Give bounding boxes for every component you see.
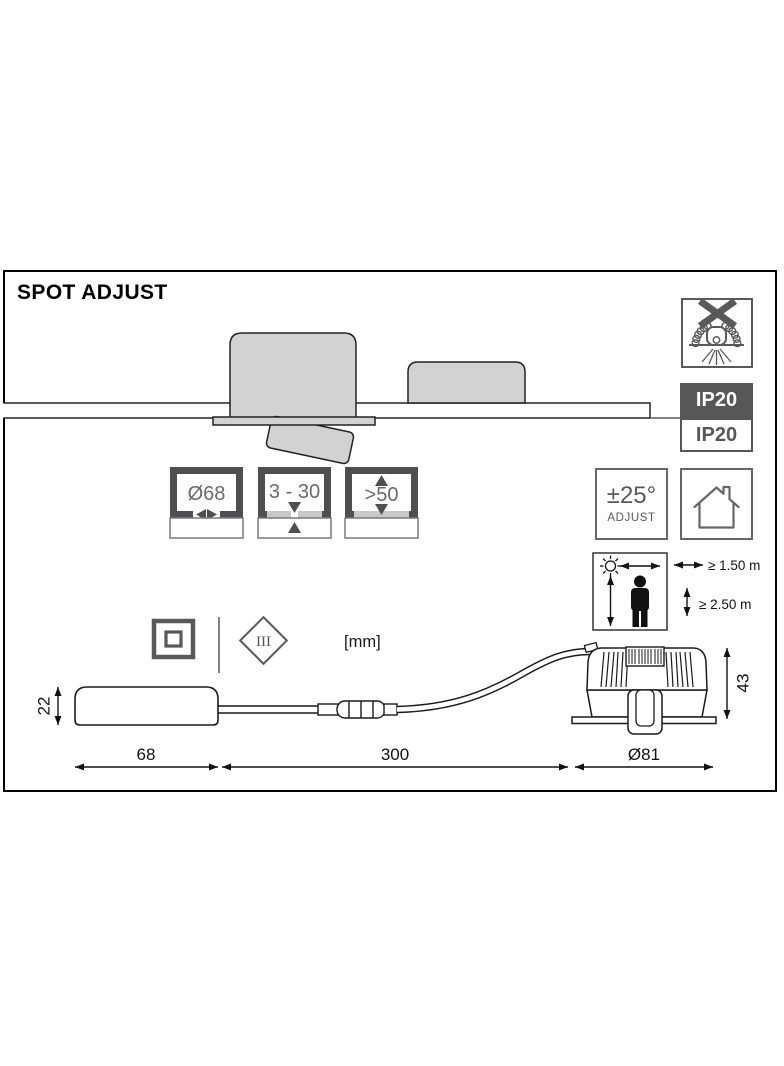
- page-title: SPOT ADJUST: [17, 281, 168, 305]
- datasheet-page: SPOT ADJUST IP20 IP20 ±25° ADJUST [mm]: [0, 0, 784, 1066]
- ip-rating-above-ceiling-badge: IP20: [680, 383, 753, 418]
- units-label: [mm]: [344, 633, 381, 652]
- ip-rating-below-ceiling-badge: IP20: [680, 418, 753, 452]
- no-insulation-cover-icon-box: [681, 298, 753, 368]
- indoor-use-icon-box: [680, 468, 753, 540]
- tilt-angle-value: ±25°: [607, 484, 656, 508]
- tilt-adjust-box: ±25° ADJUST: [595, 468, 668, 540]
- tilt-adjust-label: ADJUST: [607, 512, 655, 524]
